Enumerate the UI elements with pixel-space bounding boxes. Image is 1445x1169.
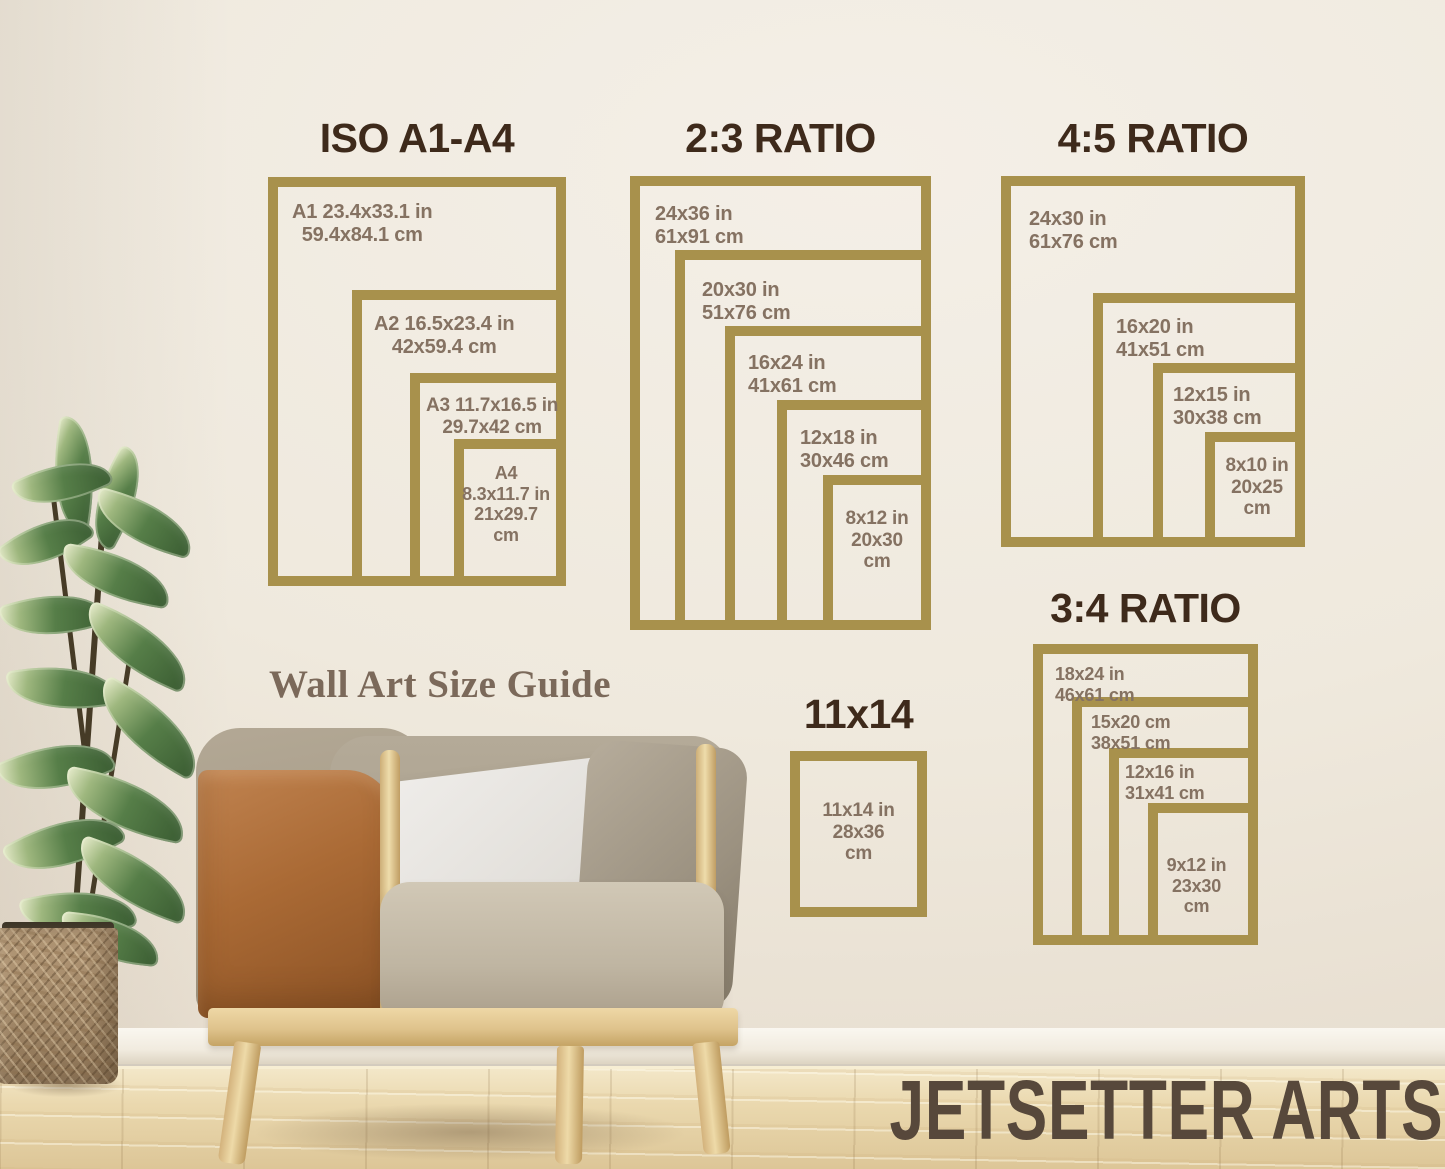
size-text: 8x12 in: [827, 508, 927, 530]
size-chart-4-5-ratio: 24x30 in 61x76 cm 16x20 in 41x51 cm 12x1…: [1001, 176, 1305, 547]
size-text: 28x36: [800, 822, 917, 844]
size-text: 15x20 cm: [1091, 712, 1170, 733]
frame-label-15x20: 15x20 cm 38x51 cm: [1091, 712, 1170, 753]
size-text: A3 11.7x16.5 in: [426, 395, 558, 417]
chair-leg: [555, 1046, 584, 1164]
size-text: 30x38 cm: [1173, 407, 1261, 430]
frame-label-9x12: 9x12 in 23x30 cm: [1145, 855, 1248, 917]
size-chart-2-3-ratio: 24x36 in 61x91 cm 20x30 in 51x76 cm 16x2…: [630, 176, 931, 630]
size-text: 29.7x42 cm: [426, 417, 558, 439]
chart-title-3-4-ratio: 3:4 RATIO: [1033, 588, 1258, 629]
frame-label-a2: A2 16.5x23.4 in 42x59.4 cm: [374, 313, 514, 359]
size-text: cm: [827, 551, 927, 573]
frame-label-18x24: 18x24 in 46x61 cm: [1055, 664, 1134, 705]
size-chart-iso-a1-a4: A1 23.4x33.1 in 59.4x84.1 cm A2 16.5x23.…: [268, 177, 566, 586]
size-text: A4: [456, 463, 556, 484]
size-text: cm: [1145, 896, 1248, 917]
size-text: 20x30: [827, 530, 927, 552]
size-text: 18x24 in: [1055, 664, 1134, 685]
frame-label-24x36: 24x36 in 61x91 cm: [655, 203, 743, 249]
brand-watermark: JETSETTER ARTS: [889, 1068, 1443, 1152]
frame-label-a3: A3 11.7x16.5 in 29.7x42 cm: [426, 395, 558, 438]
frame-label-8x12: 8x12 in 20x30 cm: [827, 508, 927, 573]
frame-label-20x30: 20x30 in 51x76 cm: [702, 279, 790, 325]
size-text: 41x61 cm: [748, 375, 836, 398]
size-text: 12x16 in: [1125, 762, 1204, 783]
size-text: 41x51 cm: [1116, 339, 1204, 362]
size-text: 31x41 cm: [1125, 783, 1204, 804]
leather-side-panel: [198, 770, 394, 1018]
size-text: 23x30: [1145, 876, 1248, 897]
size-text: 61x91 cm: [655, 226, 743, 249]
size-text: 61x76 cm: [1029, 231, 1117, 254]
size-text: 11x14 in: [800, 800, 917, 822]
chart-title-2-3-ratio: 2:3 RATIO: [630, 118, 931, 159]
size-text: A1 23.4x33.1 in: [292, 201, 432, 224]
frame-label-8x10: 8x10 in 20x25 cm: [1211, 455, 1303, 520]
chair-shadow: [170, 1092, 770, 1169]
size-text: 12x15 in: [1173, 384, 1261, 407]
size-text: 46x61 cm: [1055, 685, 1134, 706]
frame-label-12x18: 12x18 in 30x46 cm: [800, 427, 888, 473]
chart-title-4-5-ratio: 4:5 RATIO: [1001, 118, 1305, 159]
size-text: 51x76 cm: [702, 302, 790, 325]
size-text: 16x24 in: [748, 352, 836, 375]
size-text: 42x59.4 cm: [374, 336, 514, 359]
size-chart-11x14: 11x14 in 28x36 cm: [790, 751, 927, 917]
armchair: [170, 720, 770, 1169]
chart-title-11x14: 11x14: [790, 694, 927, 735]
plant-leaf: [5, 657, 119, 720]
frame-label-12x15: 12x15 in 30x38 cm: [1173, 384, 1261, 430]
frame-label-a1: A1 23.4x33.1 in 59.4x84.1 cm: [292, 201, 432, 247]
size-text: cm: [800, 843, 917, 865]
chair-seat-cushion: [380, 882, 724, 1022]
size-text: A2 16.5x23.4 in: [374, 313, 514, 336]
size-text: 9x12 in: [1145, 855, 1248, 876]
size-text: 38x51 cm: [1091, 733, 1170, 754]
size-chart-3-4-ratio: 18x24 in 46x61 cm 15x20 cm 38x51 cm 12x1…: [1033, 644, 1258, 945]
size-text: 16x20 in: [1116, 316, 1204, 339]
chair-wood-rail: [208, 1008, 738, 1046]
size-text: cm: [456, 525, 556, 546]
frame-label-16x20: 16x20 in 41x51 cm: [1116, 316, 1204, 362]
size-text: 8x10 in: [1211, 455, 1303, 477]
size-text: 59.4x84.1 cm: [292, 224, 432, 247]
frame-label-16x24: 16x24 in 41x61 cm: [748, 352, 836, 398]
frame-label-11x14: 11x14 in 28x36 cm: [800, 800, 917, 865]
frame-label-12x16: 12x16 in 31x41 cm: [1125, 762, 1204, 803]
chart-title-iso-a1-a4: ISO A1-A4: [268, 118, 566, 159]
wall-art-size-guide-scene: ISO A1-A4 A1 23.4x33.1 in 59.4x84.1 cm A…: [0, 0, 1445, 1169]
woven-planter: [0, 928, 118, 1084]
guide-caption: Wall Art Size Guide: [240, 662, 640, 707]
size-text: 24x36 in: [655, 203, 743, 226]
frame-label-24x30: 24x30 in 61x76 cm: [1029, 208, 1117, 254]
size-text: 12x18 in: [800, 427, 888, 450]
size-text: cm: [1211, 498, 1303, 520]
size-text: 30x46 cm: [800, 450, 888, 473]
size-text: 8.3x11.7 in: [456, 484, 556, 505]
size-text: 20x30 in: [702, 279, 790, 302]
size-text: 24x30 in: [1029, 208, 1117, 231]
frame-label-a4: A4 8.3x11.7 in 21x29.7 cm: [456, 463, 556, 545]
size-text: 21x29.7: [456, 504, 556, 525]
size-text: 20x25: [1211, 477, 1303, 499]
